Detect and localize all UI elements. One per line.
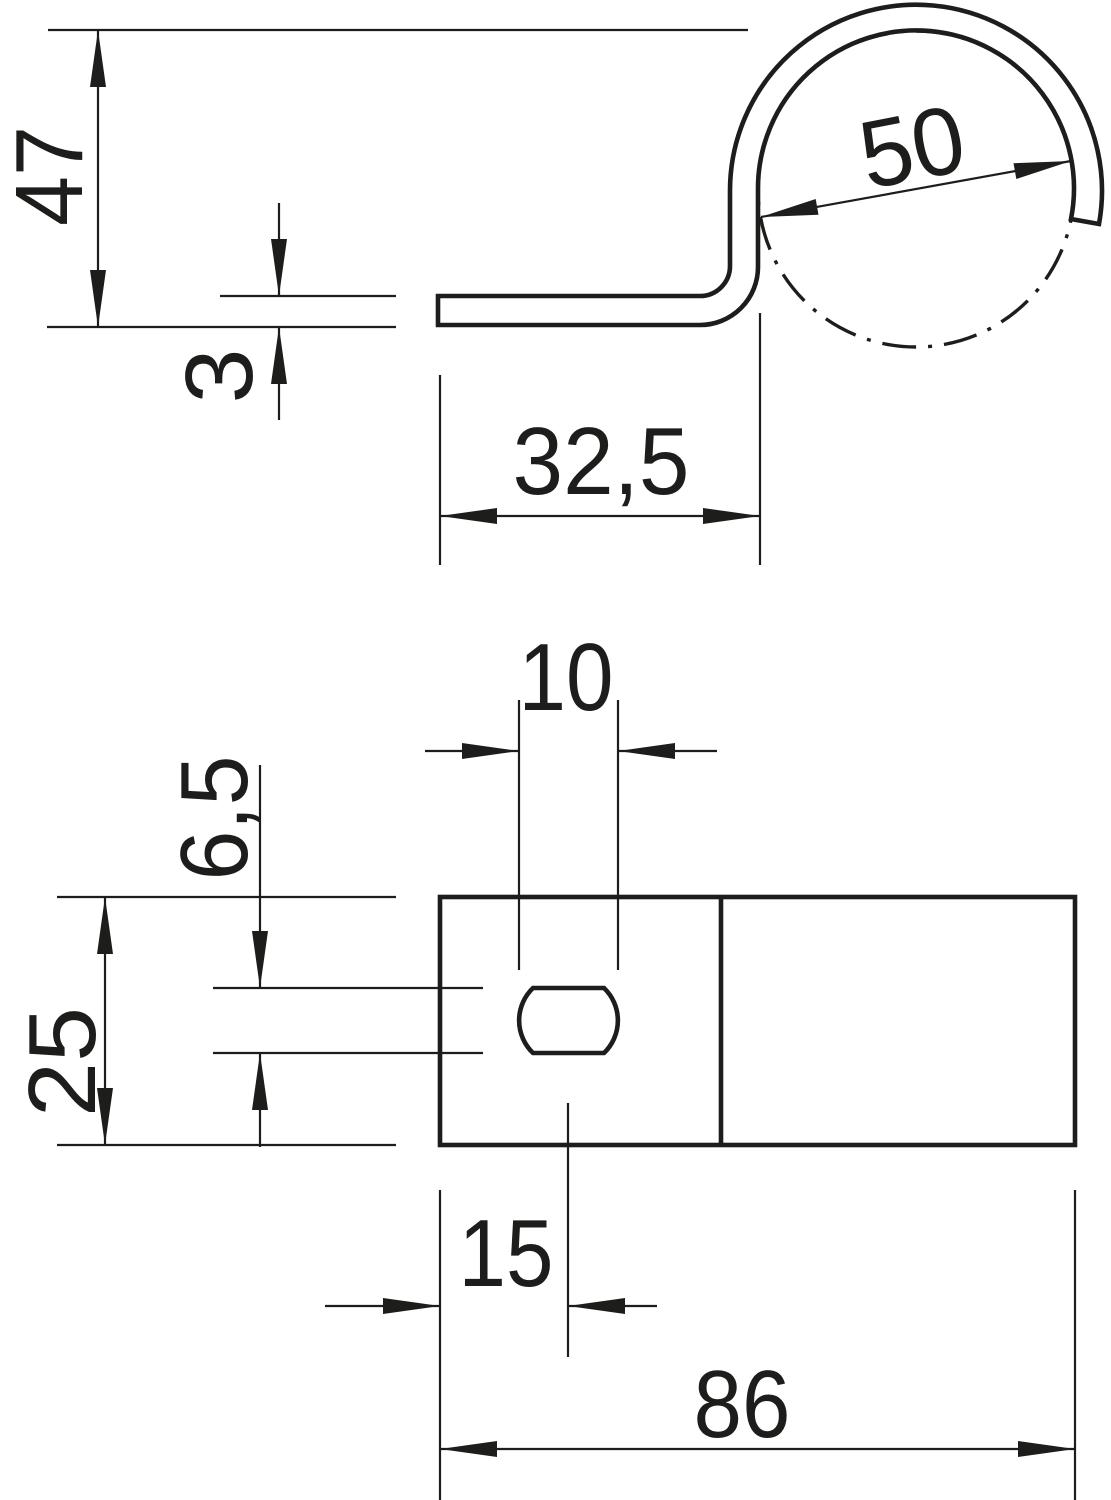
dim-slot-offset-label: 15 [459,1200,554,1307]
drawing-canvas: 47 3 50 32,5 [0,0,1111,1500]
dim-total-length-label: 86 [694,1351,791,1458]
dim-slot-length-label: 10 [519,624,614,731]
dim-diameter: 50 [761,85,1071,217]
dim-height-label: 47 [0,126,103,226]
technical-drawing: 47 3 50 32,5 [0,0,1111,1500]
dim-plate-width-label: 25 [9,1007,116,1117]
dim-slot-width-label: 6,5 [161,756,268,881]
side-view: 47 3 50 32,5 [0,5,1102,565]
top-view: 10 6,5 25 15 86 [9,624,1075,1500]
dim-plate-width: 25 [9,897,396,1145]
dim-foot-length-label: 32,5 [513,408,690,515]
dim-height: 47 [0,30,748,327]
dim-foot-length: 32,5 [440,313,760,565]
dim-diameter-label: 50 [851,85,974,210]
dim-slot-width: 6,5 [161,756,483,1148]
slot-hole [519,988,618,1053]
dim-thickness-label: 3 [166,349,273,404]
dim-thickness: 3 [166,203,396,420]
clip-profile [438,5,1102,325]
